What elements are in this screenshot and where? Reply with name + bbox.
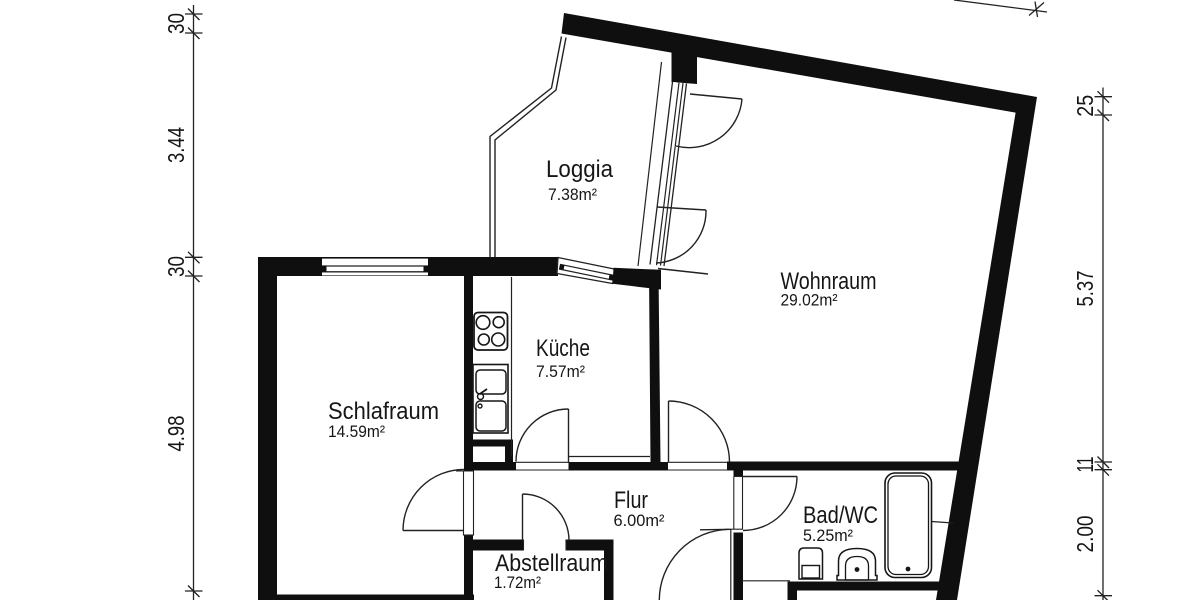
svg-text:5.37: 5.37 (1072, 271, 1098, 307)
svg-text:30: 30 (163, 13, 189, 34)
svg-text:29.02m²: 29.02m² (781, 291, 838, 310)
svg-text:14.59m²: 14.59m² (328, 422, 385, 441)
svg-text:7.57m²: 7.57m² (536, 362, 585, 381)
svg-text:4.98: 4.98 (163, 416, 189, 452)
svg-text:6.00m²: 6.00m² (614, 511, 665, 530)
svg-text:Bad/WC: Bad/WC (803, 502, 878, 529)
svg-text:Loggia: Loggia (546, 156, 614, 183)
svg-text:25: 25 (1072, 95, 1098, 117)
svg-text:7.38m²: 7.38m² (548, 185, 597, 204)
svg-text:2.00: 2.00 (1072, 516, 1098, 553)
svg-text:Flur: Flur (614, 487, 648, 514)
svg-text:Küche: Küche (536, 335, 590, 362)
svg-text:Schlafraum: Schlafraum (328, 398, 439, 425)
svg-text:11: 11 (1072, 457, 1098, 473)
svg-text:30: 30 (163, 256, 189, 277)
svg-text:5.25m²: 5.25m² (803, 526, 853, 545)
svg-text:1.72m²: 1.72m² (494, 573, 541, 592)
svg-text:3.44: 3.44 (163, 127, 189, 163)
